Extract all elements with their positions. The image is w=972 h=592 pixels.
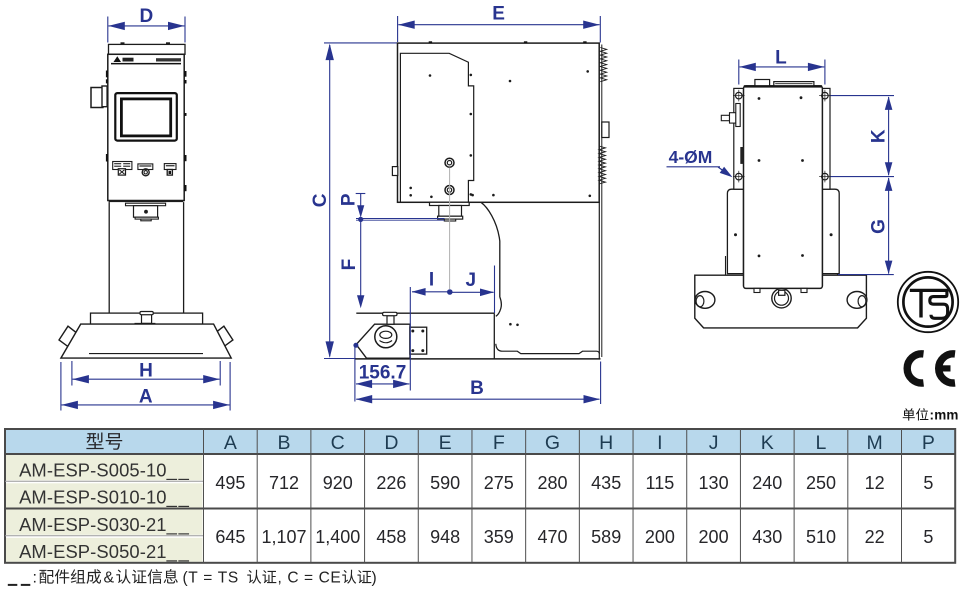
svg-text:115: 115 [646,473,675,493]
svg-text:C: C [310,193,331,207]
svg-text:275: 275 [484,473,514,493]
svg-text:12: 12 [865,473,885,493]
svg-text:458: 458 [376,527,406,547]
svg-text:B: B [278,432,291,454]
svg-text:435: 435 [591,473,621,493]
svg-text::mm: :mm [930,408,959,423]
svg-text:712: 712 [269,473,299,493]
svg-text:430: 430 [752,527,782,547]
svg-text:226: 226 [376,473,406,493]
svg-text:): ) [372,570,377,587]
svg-text:C: C [331,432,345,454]
svg-text:AM-ESP-S050-21_ _: AM-ESP-S050-21_ _ [19,541,190,563]
svg-text:280: 280 [537,473,567,493]
svg-text:F: F [493,432,505,454]
svg-text:H: H [139,360,153,381]
svg-text:H: H [599,432,613,454]
svg-text:510: 510 [806,527,836,547]
svg-text:920: 920 [323,473,353,493]
svg-text:250: 250 [806,473,836,493]
svg-text:I: I [429,269,434,290]
svg-text:948: 948 [430,527,460,547]
svg-text:K: K [868,129,889,143]
svg-text:589: 589 [591,527,621,547]
svg-text:L: L [775,47,787,68]
svg-text:4-ØM: 4-ØM [669,147,713,167]
svg-text:D: D [384,432,398,454]
svg-text:AM-ESP-S010-10_ _: AM-ESP-S010-10_ _ [19,487,190,509]
svg-text:5: 5 [923,473,933,493]
svg-text:I: I [657,432,662,454]
svg-text:22: 22 [865,527,885,547]
svg-text:495: 495 [215,473,245,493]
svg-text:P: P [338,193,359,206]
svg-text:L: L [816,432,827,454]
svg-text:645: 645 [215,527,245,547]
svg-text:D: D [140,6,154,27]
svg-text::: : [33,570,37,587]
svg-text:130: 130 [699,473,729,493]
svg-text:G: G [868,219,889,234]
svg-text:G: G [545,432,560,454]
svg-text:P: P [922,432,935,454]
svg-text:AM-ESP-S030-21_ _: AM-ESP-S030-21_ _ [19,514,190,536]
svg-text:A: A [139,386,153,407]
svg-text:200: 200 [699,527,729,547]
svg-text:E: E [492,4,505,25]
svg-text:M: M [867,432,883,454]
svg-text:F: F [339,259,360,271]
svg-text:359: 359 [484,527,514,547]
svg-text:156.7: 156.7 [359,362,407,383]
svg-text:590: 590 [430,473,460,493]
svg-text:J: J [709,432,719,454]
svg-text:240: 240 [752,473,782,493]
svg-text:E: E [439,432,452,454]
svg-text:J: J [466,270,477,291]
svg-text:, C = CE: , C = CE [278,570,342,587]
svg-text:470: 470 [537,527,567,547]
svg-text:5: 5 [923,527,933,547]
svg-text:AM-ESP-S005-10_ _: AM-ESP-S005-10_ _ [19,459,190,481]
svg-text:(T = TS: (T = TS [183,570,239,587]
svg-text:1,107: 1,107 [262,527,307,547]
svg-text:&: & [104,570,115,587]
svg-text:B: B [470,378,484,399]
svg-text:K: K [761,432,774,454]
svg-text:200: 200 [645,527,675,547]
svg-text:A: A [224,432,237,454]
svg-text:1,400: 1,400 [315,527,360,547]
